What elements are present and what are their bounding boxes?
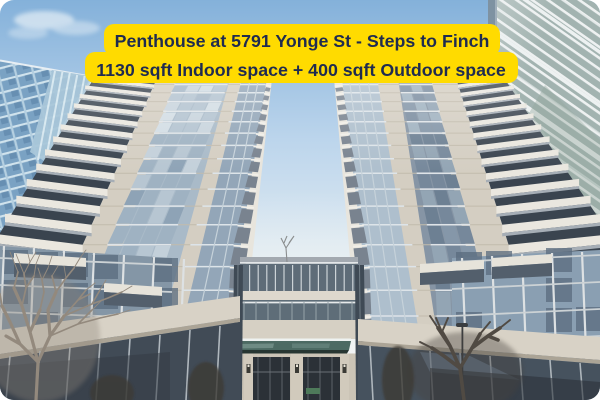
svg-text:Penthouse at 5791 Yonge St - S: Penthouse at 5791 Yonge St - Steps to Fi… (115, 31, 490, 51)
svg-text:1130 sqft Indoor space + 400 s: 1130 sqft Indoor space + 400 sqft Outdoo… (96, 60, 506, 80)
